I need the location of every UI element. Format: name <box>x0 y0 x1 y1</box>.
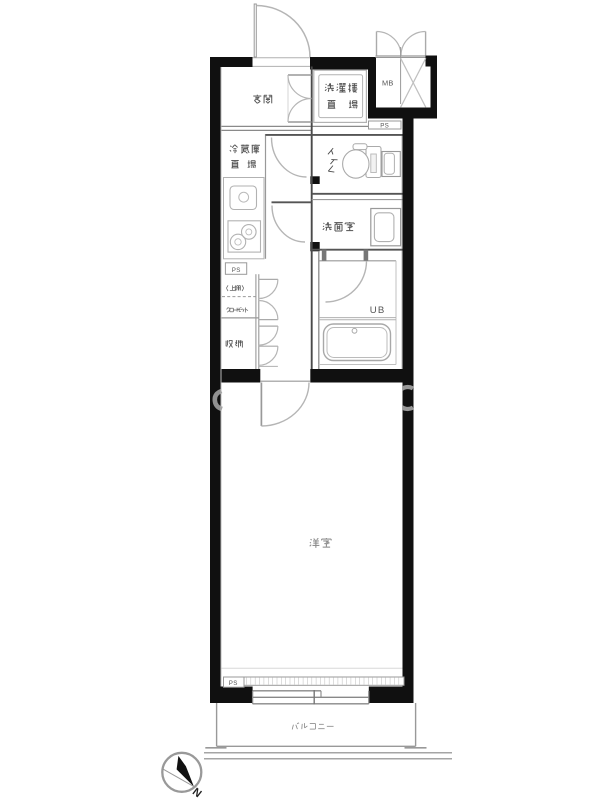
svg-text:PS: PS <box>229 680 238 687</box>
svg-text:UB: UB <box>370 305 386 316</box>
svg-text:PS: PS <box>232 267 241 274</box>
svg-text:PS: PS <box>380 123 389 130</box>
svg-text:MB: MB <box>382 78 394 87</box>
